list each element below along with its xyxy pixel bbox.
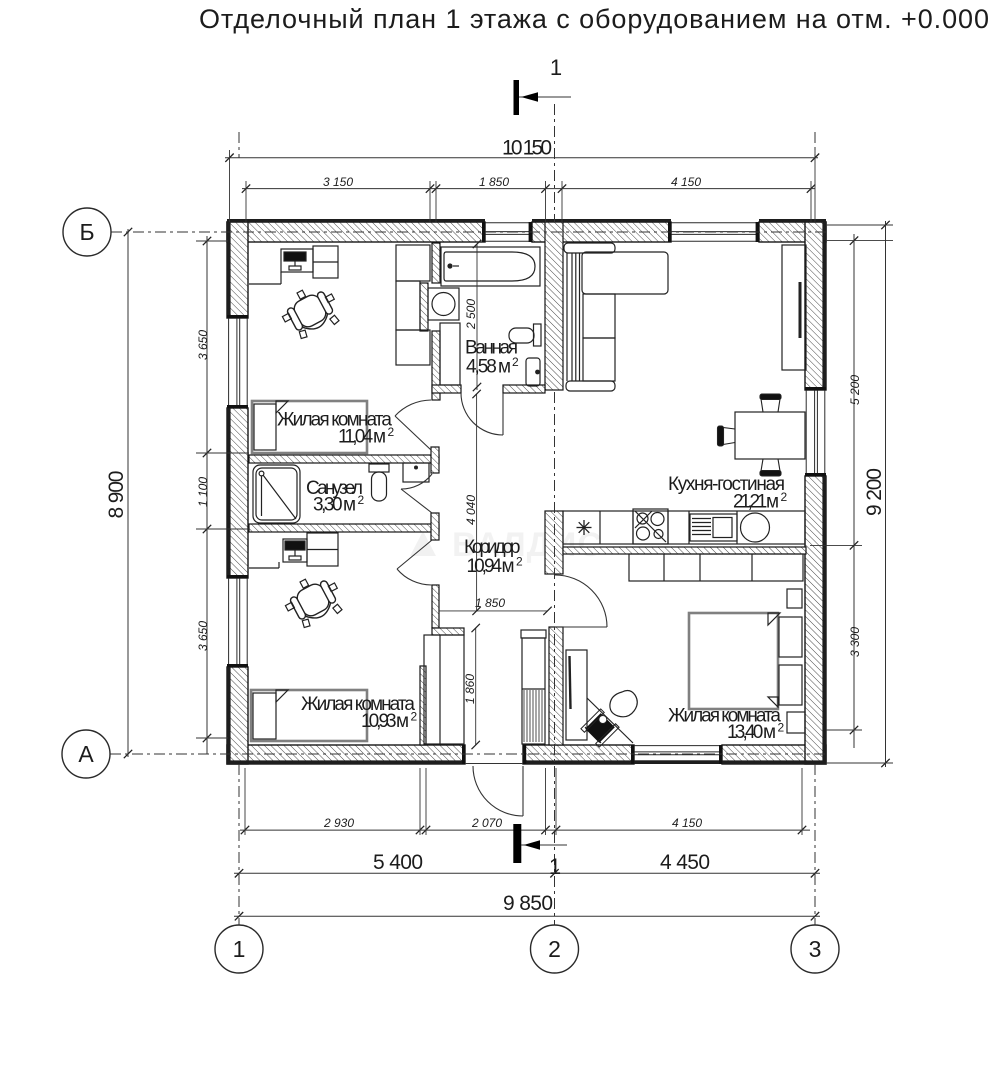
- svg-text:3: 3: [809, 936, 822, 962]
- svg-text:5 200: 5 200: [848, 375, 862, 405]
- svg-text:Коридор: Коридор: [464, 537, 521, 558]
- svg-text:2: 2: [411, 710, 418, 724]
- svg-text:2: 2: [781, 490, 788, 504]
- svg-text:2 930: 2 930: [323, 816, 354, 830]
- svg-text:10,94 м: 10,94 м: [467, 556, 515, 577]
- svg-text:2: 2: [358, 493, 365, 507]
- svg-text:3 300: 3 300: [848, 627, 862, 657]
- svg-text:3 150: 3 150: [323, 175, 353, 189]
- svg-text:1: 1: [233, 936, 246, 962]
- svg-text:8 900: 8 900: [105, 471, 128, 519]
- svg-text:10 150: 10 150: [502, 137, 552, 160]
- svg-text:2: 2: [516, 555, 523, 569]
- svg-text:4 450: 4 450: [660, 851, 710, 874]
- svg-text:4 150: 4 150: [671, 175, 701, 189]
- svg-text:2: 2: [512, 355, 519, 369]
- svg-text:21,21 м: 21,21 м: [733, 492, 779, 513]
- svg-text:9 200: 9 200: [863, 468, 886, 516]
- svg-text:Отделочный план 1 этажа с обор: Отделочный план 1 этажа с оборудованием …: [199, 4, 989, 34]
- svg-text:А: А: [78, 741, 94, 767]
- svg-text:Ванная: Ванная: [465, 338, 518, 359]
- svg-text:2: 2: [548, 936, 561, 962]
- svg-text:2: 2: [388, 425, 395, 439]
- svg-text:2 070: 2 070: [471, 816, 502, 830]
- svg-text:1 860: 1 860: [463, 674, 477, 704]
- svg-text:10,93 м: 10,93 м: [361, 711, 409, 732]
- svg-text:Б: Б: [79, 219, 94, 245]
- svg-text:3,30 м: 3,30 м: [313, 495, 356, 516]
- svg-text:3 650: 3 650: [196, 330, 210, 360]
- svg-text:13,40 м: 13,40 м: [727, 722, 776, 743]
- svg-text:4 150: 4 150: [672, 816, 702, 830]
- svg-text:5 400: 5 400: [373, 851, 423, 874]
- svg-text:9 850: 9 850: [503, 892, 553, 915]
- svg-text:1: 1: [549, 854, 561, 879]
- svg-text:2 500: 2 500: [464, 299, 478, 330]
- svg-text:4 040: 4 040: [464, 495, 478, 525]
- svg-text:1: 1: [550, 55, 562, 80]
- svg-text:2: 2: [778, 721, 785, 735]
- svg-text:3 650: 3 650: [196, 621, 210, 651]
- svg-text:1 850: 1 850: [479, 175, 509, 189]
- svg-text:11,04 м: 11,04 м: [338, 427, 386, 448]
- svg-text:4,58 м: 4,58 м: [466, 357, 511, 378]
- svg-text:1 100: 1 100: [196, 477, 210, 507]
